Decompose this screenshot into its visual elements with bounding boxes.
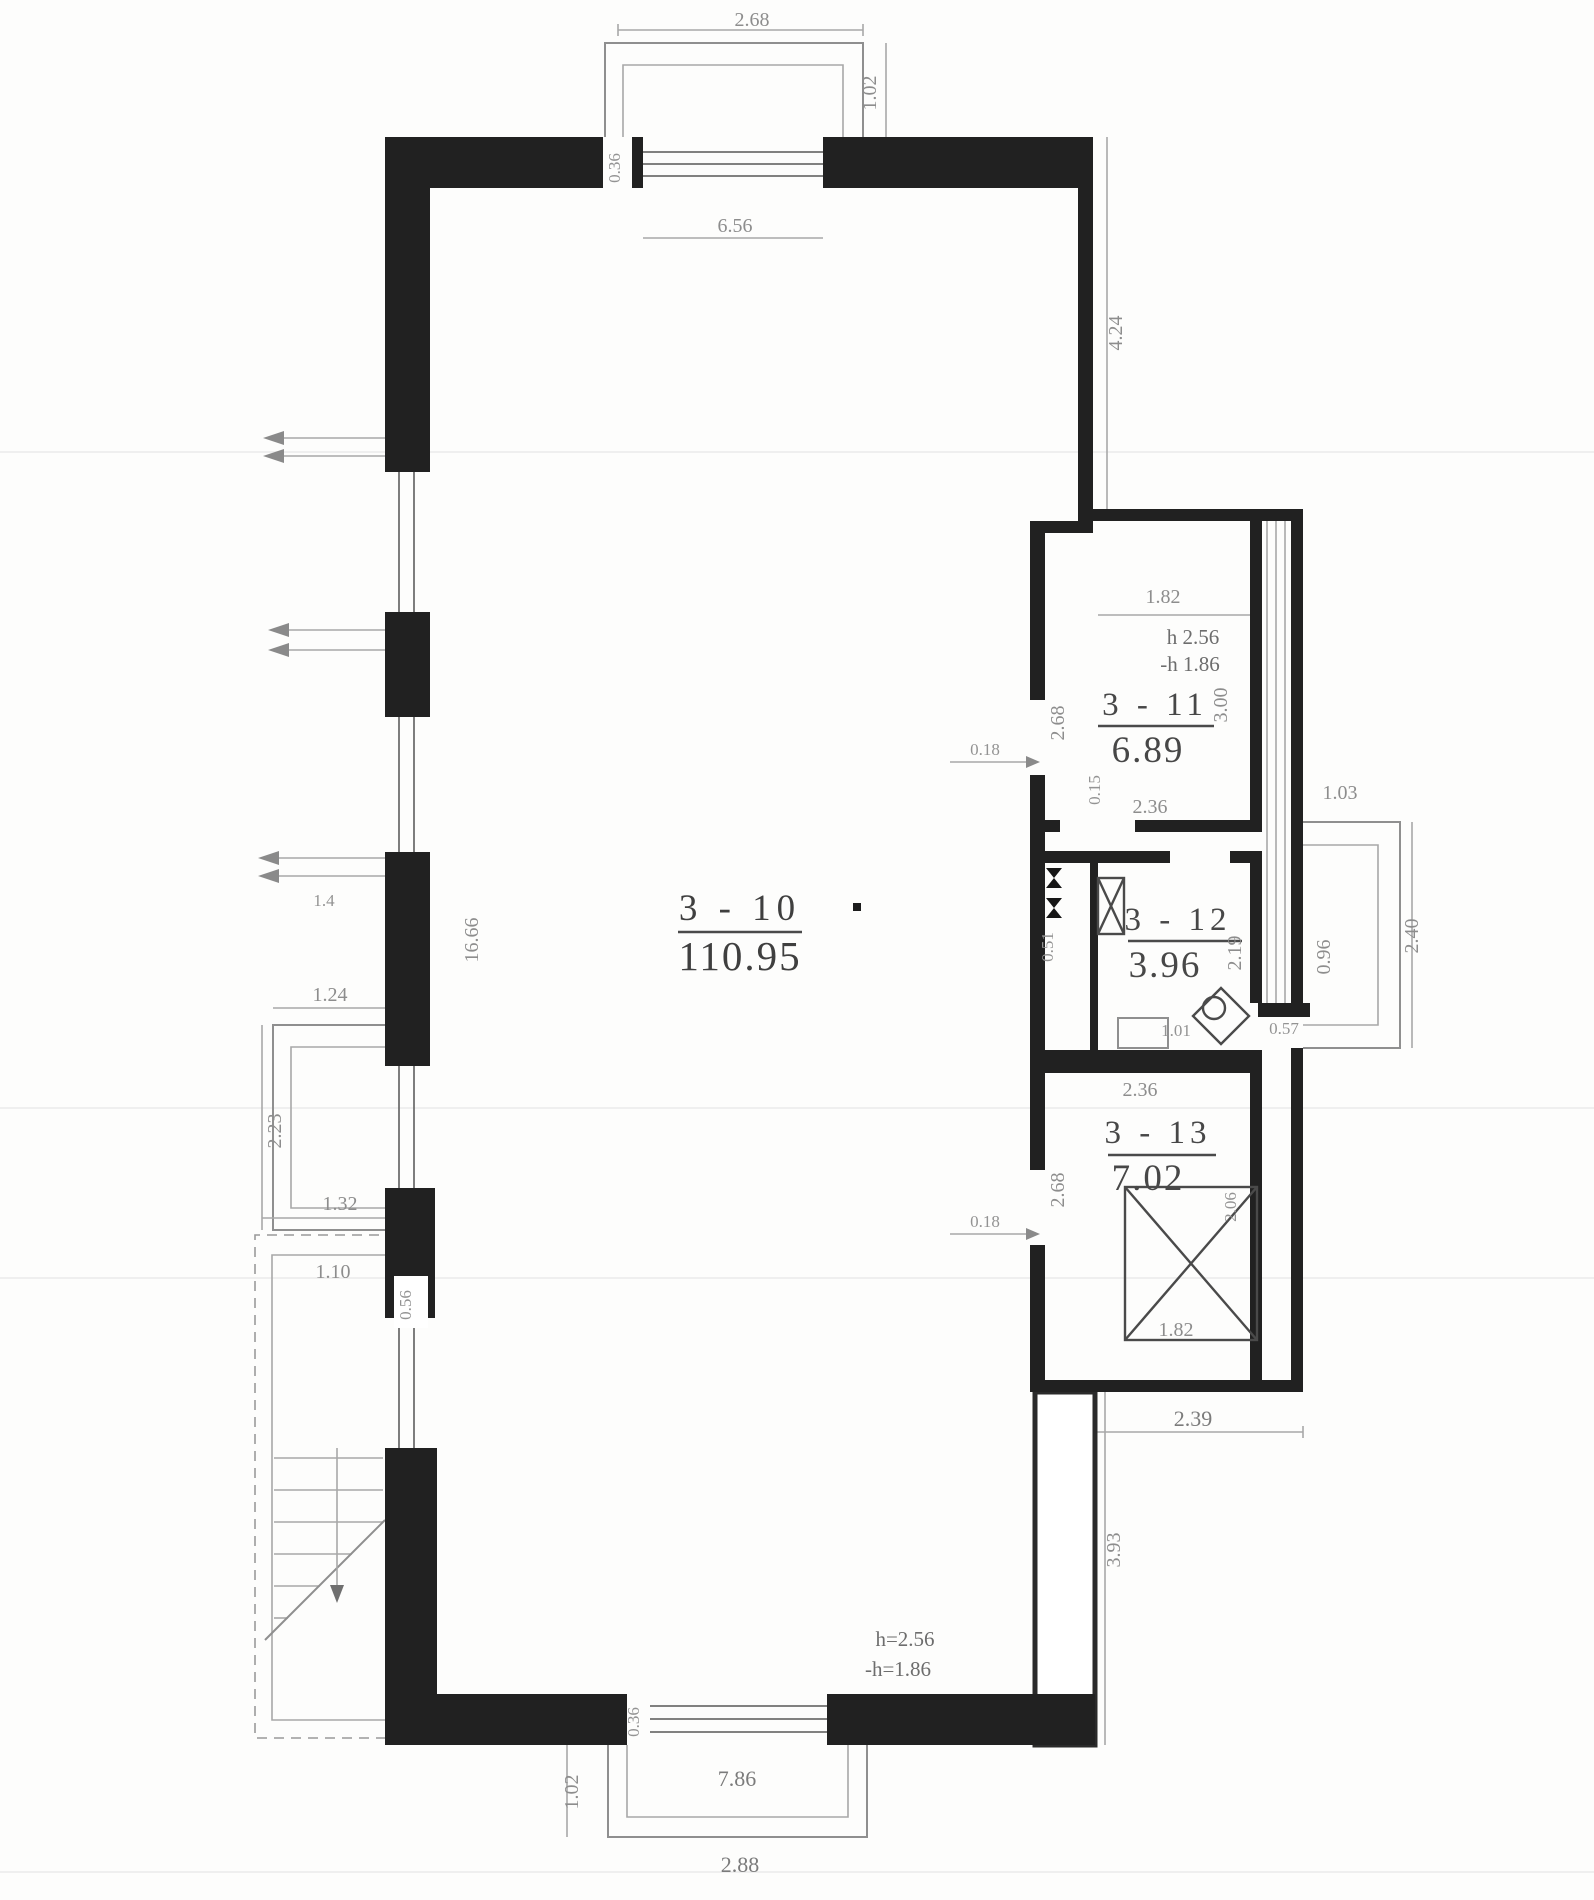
- room-main-id: 3 - 10: [679, 888, 801, 929]
- dim-r11-bottom-width: 2.36: [1133, 796, 1168, 818]
- room-r13-area: 7.02: [1112, 1158, 1185, 1199]
- dim-r11-height: 3.00: [1210, 688, 1232, 723]
- floor-plan-drawing: 2.68 1.02 6.56 0.36 4.24 3 - 10 110.95 1…: [0, 0, 1594, 1900]
- dim-right-lower-height: 3.93: [1103, 1533, 1125, 1568]
- chimney-shaft: [1267, 521, 1285, 1003]
- dim-r11-door: 0.15: [1085, 775, 1104, 805]
- survey-dot: [853, 903, 861, 911]
- dim-annex-bottom: 2.39: [1174, 1406, 1213, 1431]
- room-r12-id: 3 - 12: [1125, 902, 1232, 938]
- note-bottom-height: h=2.56: [875, 1627, 934, 1651]
- dim-rbalc-inner: 0.96: [1313, 940, 1335, 975]
- dim-door-gap-upper: 0.18: [970, 740, 1000, 759]
- room-r11-area: 6.89: [1112, 730, 1185, 771]
- right-lower-wall: [1035, 1392, 1095, 1745]
- note-r11-height-minus: -h 1.86: [1160, 652, 1220, 676]
- top-balcony: [605, 24, 886, 238]
- dim-top-balcony-depth: 1.02: [859, 76, 881, 111]
- dim-r11-top-width: 1.82: [1146, 586, 1181, 608]
- dim-bottom-pier: 0.36: [624, 1707, 643, 1737]
- dim-sink: 1.01: [1161, 1021, 1191, 1040]
- dim-left-mid: 1.32: [323, 1193, 358, 1215]
- dim-x-width: 1.82: [1159, 1319, 1194, 1341]
- dim-bottom-balcony-depth: 1.02: [561, 1775, 583, 1810]
- duct-icon: [1046, 868, 1062, 918]
- vent-box-icon: [1098, 878, 1124, 934]
- dim-top-inner-width: 6.56: [718, 215, 753, 237]
- left-window-arrows: [258, 431, 385, 883]
- toilet-icon: [1193, 988, 1249, 1044]
- room-r11-id: 3 - 11: [1102, 687, 1208, 723]
- dim-rbalc-width: 1.03: [1323, 782, 1358, 804]
- room-r13-id: 3 - 13: [1105, 1115, 1212, 1151]
- dim-r13-top-width: 2.36: [1123, 1079, 1158, 1101]
- dim-door-gap-lower: 0.18: [970, 1212, 1000, 1231]
- dim-party-lower: 2.68: [1047, 1173, 1069, 1208]
- dim-r12-depth: 2.19: [1224, 936, 1246, 971]
- dim-rbalc-depth: 2.40: [1401, 919, 1423, 954]
- dim-right-upper-height: 4.24: [1105, 316, 1127, 351]
- dim-top-pier: 0.36: [605, 153, 624, 183]
- labels: 2.68 1.02 6.56 0.36 4.24 3 - 10 110.95 1…: [264, 9, 1423, 1877]
- dim-left-length: 16.66: [461, 918, 483, 963]
- dim-left-balcony-width: 1.24: [313, 984, 348, 1006]
- dim-left-balcony-height: 2.23: [264, 1114, 286, 1149]
- floor-plan-page: 2.68 1.02 6.56 0.36 4.24 3 - 10 110.95 1…: [0, 0, 1594, 1900]
- stairs: [265, 1448, 385, 1640]
- note-bottom-height-minus: -h=1.86: [865, 1657, 931, 1681]
- note-r11-height: h 2.56: [1167, 625, 1220, 649]
- room-main-area: 110.95: [678, 933, 801, 979]
- dim-x-height: 2.06: [1221, 1192, 1240, 1222]
- stairs-down-arrow-icon: [330, 1585, 344, 1603]
- right-balcony: [1303, 822, 1412, 1048]
- scan-artifacts: [0, 452, 1594, 1872]
- dim-wc-wall: 0.57: [1269, 1019, 1299, 1038]
- dim-shaft: 0.51: [1038, 932, 1057, 962]
- dim-left-small: 1.4: [313, 891, 335, 910]
- dim-left-pier: 0.56: [396, 1290, 415, 1320]
- dim-bottom-inner-width: 7.86: [718, 1766, 757, 1791]
- dim-left-terrace: 1.10: [316, 1261, 351, 1283]
- room-r12-area: 3.96: [1129, 945, 1202, 986]
- dim-party-upper: 2.68: [1047, 706, 1069, 741]
- dim-bottom-width: 2.88: [721, 1852, 760, 1877]
- dim-top-width: 2.68: [735, 9, 770, 31]
